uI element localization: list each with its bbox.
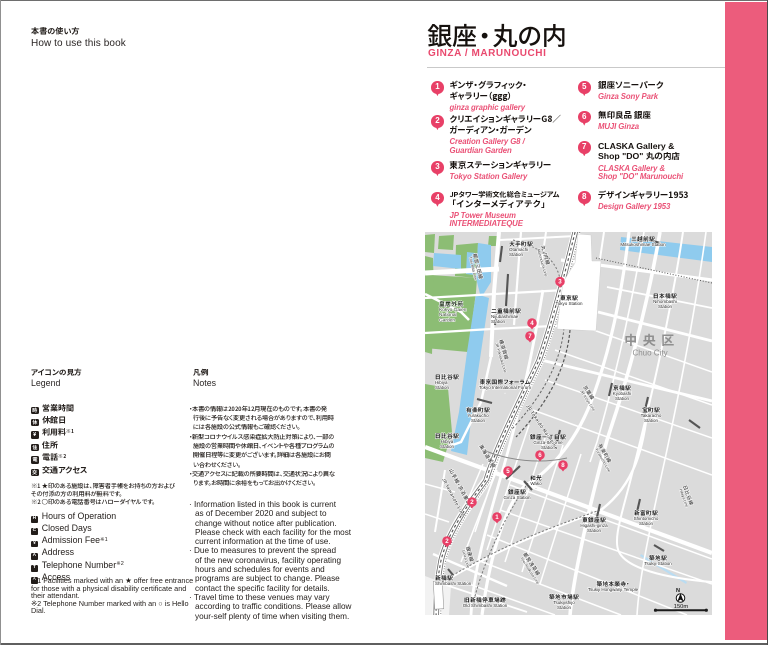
svg-text:2: 2 [470,499,474,506]
svg-text:4: 4 [530,320,534,327]
svg-text:Station: Station [557,605,572,610]
svg-text:3: 3 [558,279,562,286]
svg-text:150m: 150m [674,604,689,610]
svg-text:Ginza Station: Ginza Station [503,495,531,500]
svg-text:皇居外苑: 皇居外苑 [439,299,463,308]
svg-text:Station: Station [639,521,654,526]
svg-text:Station: Station [587,528,602,533]
svg-text:·: · [504,390,506,395]
svg-text:Old Shimbashi Station: Old Shimbashi Station [463,603,508,608]
svg-text:Tsukiji Station: Tsukiji Station [644,561,672,566]
svg-text:National: National [439,312,457,318]
svg-text:Kokyo Gaien: Kokyo Gaien [439,307,467,313]
svg-text:·: · [535,486,537,491]
svg-text:Station: Station [644,418,659,423]
svg-text:Station: Station [615,396,630,401]
svg-text:8: 8 [561,462,565,469]
svg-text:Shimbashi Station: Shimbashi Station [435,581,472,586]
svg-text:Station: Station [435,385,450,390]
svg-text:1: 1 [495,514,499,521]
svg-text:Tokyo Station: Tokyo Station [555,301,583,306]
svg-text:Station: Station [509,252,524,257]
svg-text:中央区: 中央区 [624,330,680,349]
svg-text:Chuo City: Chuo City [632,349,667,358]
svg-text:6: 6 [538,452,542,459]
svg-text:Station: Station [658,304,673,309]
svg-text:Mitsukoshimae Station: Mitsukoshimae Station [620,242,666,247]
svg-text:5: 5 [506,468,510,475]
svg-text:Station: Station [440,444,455,449]
svg-text:Station: Station [491,319,506,324]
svg-text:7: 7 [528,333,532,340]
svg-text:Station: Station [471,418,486,423]
svg-text:Garden: Garden [439,317,455,323]
svg-text:Tsukiji Hongwanji Temple: Tsukiji Hongwanji Temple [588,587,639,592]
svg-text:2: 2 [445,538,449,545]
svg-text:N: N [676,588,680,594]
